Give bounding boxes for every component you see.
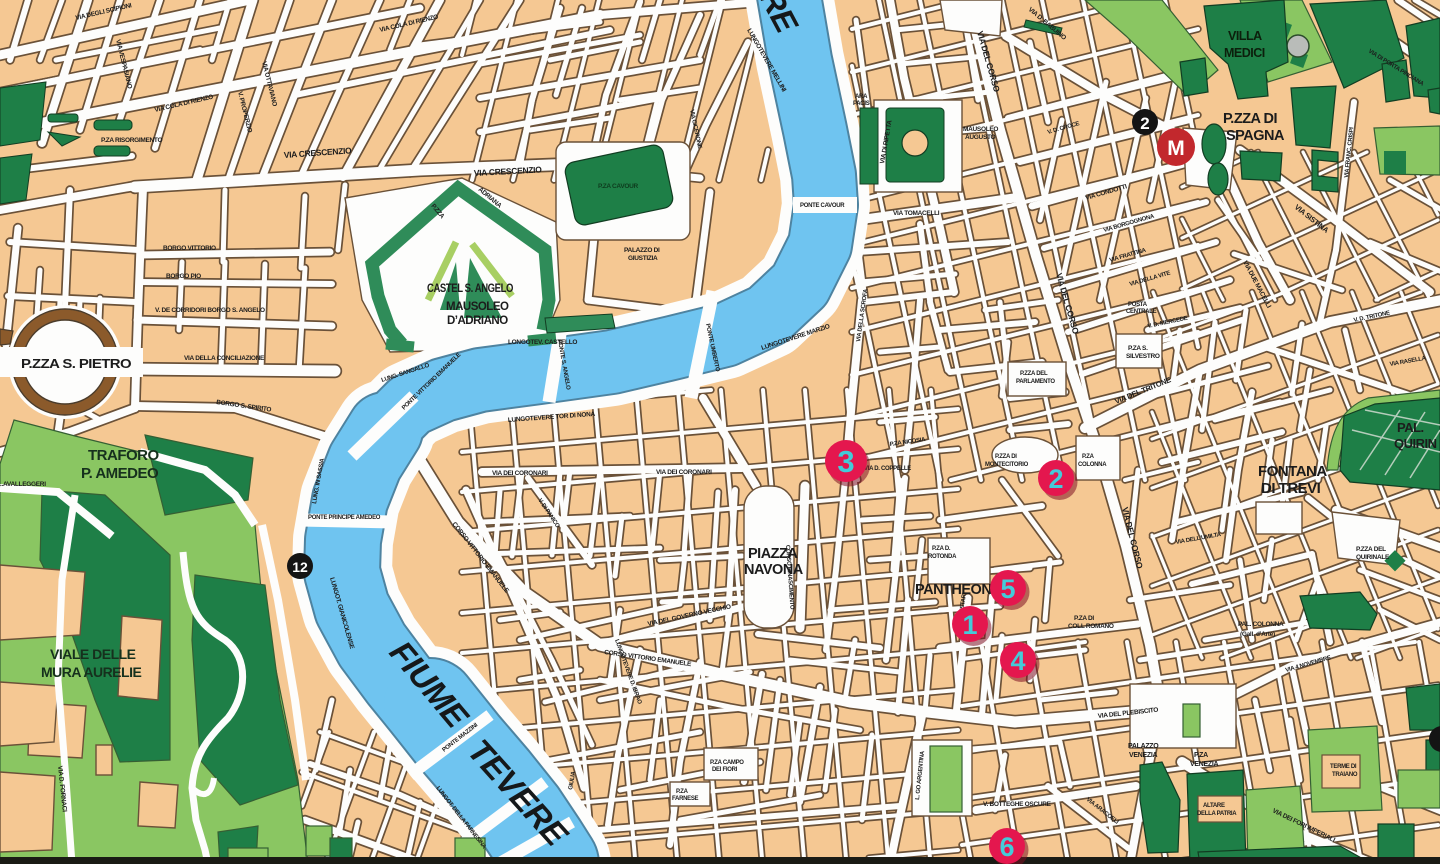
svg-text:PALAZZO DI: PALAZZO DI [624, 247, 660, 254]
svg-text:MEDICI: MEDICI [1224, 46, 1265, 60]
svg-text:5: 5 [1000, 574, 1015, 604]
svg-text:ALTARE: ALTARE [1203, 803, 1225, 809]
svg-text:P.ZA DI: P.ZA DI [1074, 615, 1094, 622]
svg-text:P.ZA D.: P.ZA D. [932, 546, 951, 552]
svg-text:P.ZA: P.ZA [1194, 752, 1208, 759]
svg-text:POSTA: POSTA [1128, 302, 1148, 308]
svg-text:SILVESTRO: SILVESTRO [1126, 353, 1160, 360]
svg-text:P.ZA S.: P.ZA S. [1128, 345, 1148, 352]
svg-text:P.ZZA DEL: P.ZZA DEL [1356, 546, 1386, 553]
svg-text:PARLAMENTO: PARLAMENTO [1016, 379, 1055, 385]
svg-text:P.ZZA DI: P.ZZA DI [1223, 111, 1277, 127]
svg-text:TERME DI: TERME DI [1330, 764, 1357, 770]
svg-text:SPAGNA: SPAGNA [1226, 128, 1285, 144]
svg-text:(Gall. d’Arte): (Gall. d’Arte) [1240, 631, 1275, 638]
svg-text:AUGUSTO: AUGUSTO [965, 134, 996, 141]
svg-text:ROTONDA: ROTONDA [928, 554, 957, 560]
svg-text:VIA DEI CORONARI: VIA DEI CORONARI [656, 469, 712, 476]
svg-text:P.ZA: P.ZA [676, 789, 689, 795]
svg-text:MURA AURELIE: MURA AURELIE [41, 664, 141, 680]
svg-text:P.ZZA DEL: P.ZZA DEL [1020, 371, 1048, 377]
svg-text:VENEZIA: VENEZIA [1190, 761, 1218, 768]
svg-text:GIUSTIZIA: GIUSTIZIA [628, 255, 658, 262]
svg-text:CENTRALE: CENTRALE [1126, 309, 1157, 315]
svg-text:NAVONA: NAVONA [744, 562, 804, 578]
svg-text:QUIRINALE: QUIRINALE [1356, 554, 1390, 561]
svg-text:TRAFORO: TRAFORO [88, 447, 159, 464]
svg-text:DELLA PATRIA: DELLA PATRIA [1197, 811, 1237, 817]
svg-text:VIA DELLA CONCILIAZIONE: VIA DELLA CONCILIAZIONE [184, 355, 265, 362]
svg-text:PACIS: PACIS [853, 101, 870, 107]
svg-text:PONTE PRINCIPE AMEDEO: PONTE PRINCIPE AMEDEO [308, 515, 381, 521]
svg-text:P.ZA CAVOUR: P.ZA CAVOUR [598, 183, 639, 190]
svg-text:2: 2 [1140, 114, 1149, 133]
svg-text:PONTE CAVOUR: PONTE CAVOUR [800, 203, 845, 209]
svg-text:CASTEL S. ANGELO: CASTEL S. ANGELO [427, 283, 513, 295]
svg-text:6: 6 [999, 832, 1014, 862]
svg-text:BORGO VITTORIO: BORGO VITTORIO [163, 245, 216, 252]
svg-text:P.ZA CAMPO: P.ZA CAMPO [710, 760, 744, 766]
svg-text:M: M [1167, 137, 1185, 160]
svg-text:D’ADRIANO: D’ADRIANO [447, 315, 508, 327]
svg-text:VIA DEI CORONARI: VIA DEI CORONARI [492, 470, 548, 477]
svg-text:P.ZZA S. PIETRO: P.ZZA S. PIETRO [21, 356, 131, 371]
svg-text:PAL.: PAL. [1397, 420, 1424, 435]
svg-text:ARA: ARA [855, 94, 868, 100]
svg-text:FARNESE: FARNESE [672, 796, 699, 802]
svg-text:VIA D. COPPELLE: VIA D. COPPELLE [864, 466, 911, 472]
svg-text:PAL. COLONNA: PAL. COLONNA [1238, 621, 1284, 628]
svg-text:VIA TOMACELLI: VIA TOMACELLI [893, 210, 940, 217]
svg-text:PALAZZO: PALAZZO [1128, 743, 1159, 750]
svg-text:DEI FIORI: DEI FIORI [712, 767, 738, 773]
svg-text:PANTHEON: PANTHEON [915, 582, 991, 598]
svg-text:TRAIANO: TRAIANO [1332, 772, 1358, 778]
svg-text:P.ZZA DI: P.ZZA DI [995, 454, 1017, 460]
svg-text:V. DE CORRIDORI BORGO S. AN: V. DE CORRIDORI BORGO S. ANGELO [155, 307, 265, 314]
svg-text:P.ZA RISORGIMENTO: P.ZA RISORGIMENTO [101, 137, 162, 144]
svg-text:P.ZA: P.ZA [1082, 454, 1095, 460]
svg-text:P. AMEDEO: P. AMEDEO [81, 465, 159, 482]
svg-text:BORGO PIO: BORGO PIO [166, 273, 201, 280]
svg-text:4: 4 [1010, 646, 1025, 676]
svg-text:COLL ROMANO: COLL ROMANO [1068, 623, 1114, 630]
svg-text:..AVALLEGGERI: ..AVALLEGGERI [0, 481, 46, 488]
svg-text:LONGOTEV. CASTELLO: LONGOTEV. CASTELLO [508, 339, 577, 346]
svg-text:3: 3 [837, 444, 854, 479]
svg-text:1: 1 [962, 610, 977, 640]
svg-text:FONTANA: FONTANA [1258, 463, 1327, 480]
svg-text:QUIRIN: QUIRIN [1394, 436, 1437, 451]
svg-text:VILLA: VILLA [1228, 29, 1262, 43]
svg-text:2: 2 [1048, 464, 1063, 494]
svg-text:VIALE DELLE: VIALE DELLE [50, 646, 136, 662]
svg-text:12: 12 [292, 559, 308, 575]
svg-text:VENEZIA: VENEZIA [1129, 752, 1157, 759]
svg-text:MONTECITORIO: MONTECITORIO [985, 462, 1029, 468]
svg-text:COLONNA: COLONNA [1078, 462, 1107, 468]
svg-text:V. BOTTEGHE OSCURE: V. BOTTEGHE OSCURE [983, 801, 1052, 808]
svg-text:MAUSOLEO: MAUSOLEO [963, 126, 998, 133]
svg-text:DI TREVI: DI TREVI [1261, 480, 1321, 497]
svg-text:MAUSOLEO: MAUSOLEO [446, 301, 509, 313]
